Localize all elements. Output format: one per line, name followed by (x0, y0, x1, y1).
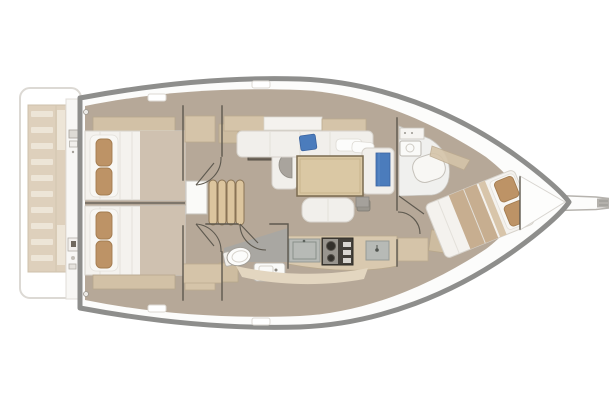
galley-sink (289, 239, 320, 262)
galley-sink-2 (366, 241, 389, 260)
aft-cabin-port (85, 117, 185, 200)
transom-steps (28, 105, 66, 272)
head-cabinet (183, 264, 222, 283)
aft-cabin-starboard (85, 206, 185, 289)
yacht-floorplan (0, 0, 609, 406)
stove (322, 238, 353, 265)
wall-box (356, 197, 369, 207)
blue-cushion (299, 134, 317, 151)
saloon-table (297, 156, 363, 196)
fwd-head-sink (400, 141, 421, 156)
blue-towel (376, 153, 390, 186)
floorplan-canvas (0, 0, 609, 406)
